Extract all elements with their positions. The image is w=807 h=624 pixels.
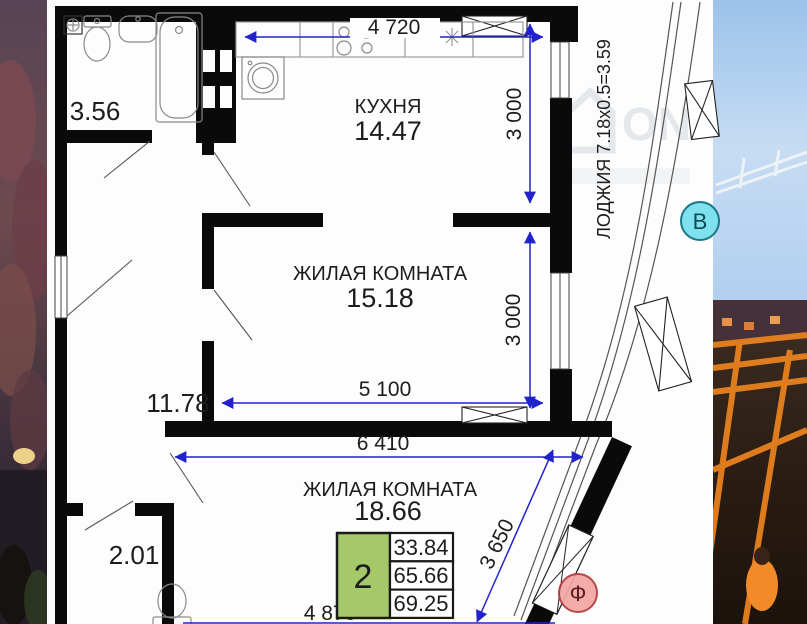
room-area-kitchen: 14.47: [354, 116, 422, 146]
dim-label-living2-width: 6 410: [357, 432, 410, 455]
loggia-label: ЛОДЖИЯ 7.18x0.5=3.59: [594, 39, 614, 239]
dim-label-kitchen-width: 4 720: [368, 16, 421, 39]
summary-value-3: 69.25: [393, 591, 448, 616]
wall-living1-top-right: [453, 213, 572, 227]
photo-right-scene: [700, 0, 807, 624]
wall-right-3: [550, 227, 572, 273]
room-area-living2: 18.66: [354, 496, 422, 526]
crossed-box-top: [462, 16, 527, 36]
marker-f-label: Ф: [570, 581, 587, 606]
wall-living1-left-upper: [202, 227, 214, 289]
dim-label-kitchen-depth: 3 000: [503, 88, 526, 141]
wall-right-2: [550, 98, 572, 213]
person-silhouette: [746, 559, 778, 611]
crossed-box-living1: [462, 407, 527, 423]
summary-value-1: 33.84: [393, 535, 448, 560]
room-name-kitchen: КУХНЯ: [355, 96, 422, 118]
summary-table: 2 33.84 65.66 69.25: [337, 533, 453, 618]
wall-stub: [202, 143, 214, 155]
wall-wc-top-right: [135, 503, 162, 516]
floorplan-canvas: ON: [0, 0, 807, 624]
marker-b-label: В: [693, 209, 708, 234]
room-area-living1: 15.18: [346, 283, 414, 313]
window-right-upper: [551, 42, 569, 98]
watermark-text: ON: [622, 98, 691, 150]
summary-value-2: 65.66: [393, 563, 448, 588]
wall-right-1: [550, 6, 578, 42]
window-right-lower: [551, 273, 569, 369]
wall-wc-top-left: [55, 503, 83, 516]
summary-rooms-count: 2: [354, 558, 373, 596]
section-marker-b: В: [681, 202, 719, 240]
room-area-bathroom: 3.56: [70, 96, 121, 126]
section-marker-f: Ф: [559, 574, 597, 612]
room-name-living1: ЖИЛАЯ КОМНАТА: [293, 263, 468, 285]
wall-left-lower: [55, 318, 67, 624]
wall-wc-right: [162, 503, 174, 624]
wall-right-4: [550, 369, 572, 421]
wall-bath-bottom: [55, 130, 152, 143]
room-area-hall: 11.78: [146, 388, 209, 418]
dim-label-living1-depth: 3 000: [502, 294, 525, 347]
wall-living1-top-left: [202, 213, 323, 227]
window-left: [55, 256, 67, 318]
room-area-wc: 2.01: [109, 540, 160, 570]
dim-label-living1-width: 5 100: [359, 378, 412, 401]
crossed-box-loggia-1: [685, 81, 720, 140]
floorplan-listing-image: ON: [0, 0, 807, 624]
